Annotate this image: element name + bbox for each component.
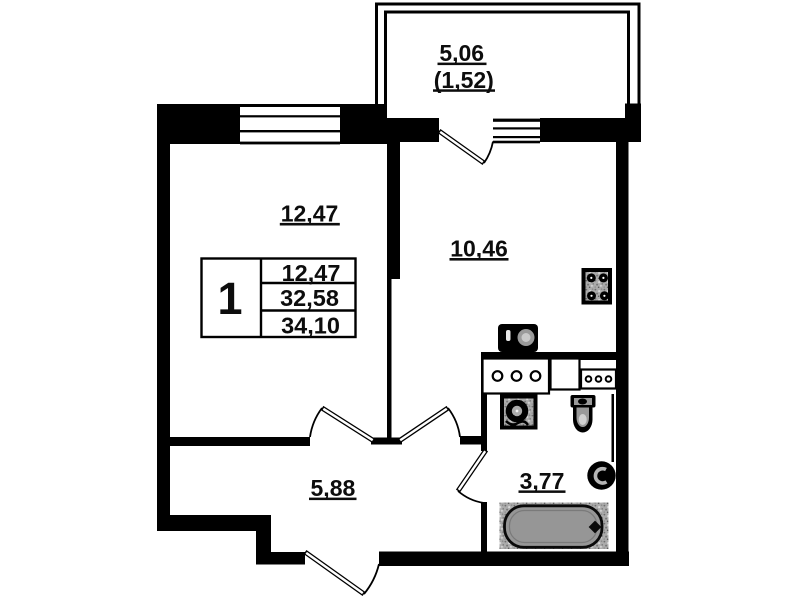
svg-text:3,77: 3,77 xyxy=(520,468,565,494)
svg-text:5,88: 5,88 xyxy=(311,475,356,501)
svg-text:12,47: 12,47 xyxy=(281,201,339,227)
svg-text:(1,52): (1,52) xyxy=(434,67,494,93)
svg-text:5,06: 5,06 xyxy=(439,40,484,66)
svg-text:1: 1 xyxy=(217,273,242,324)
svg-text:34,10: 34,10 xyxy=(281,312,340,338)
svg-text:32,58: 32,58 xyxy=(280,285,339,311)
svg-text:12,47: 12,47 xyxy=(282,260,341,286)
svg-text:10,46: 10,46 xyxy=(450,236,508,262)
